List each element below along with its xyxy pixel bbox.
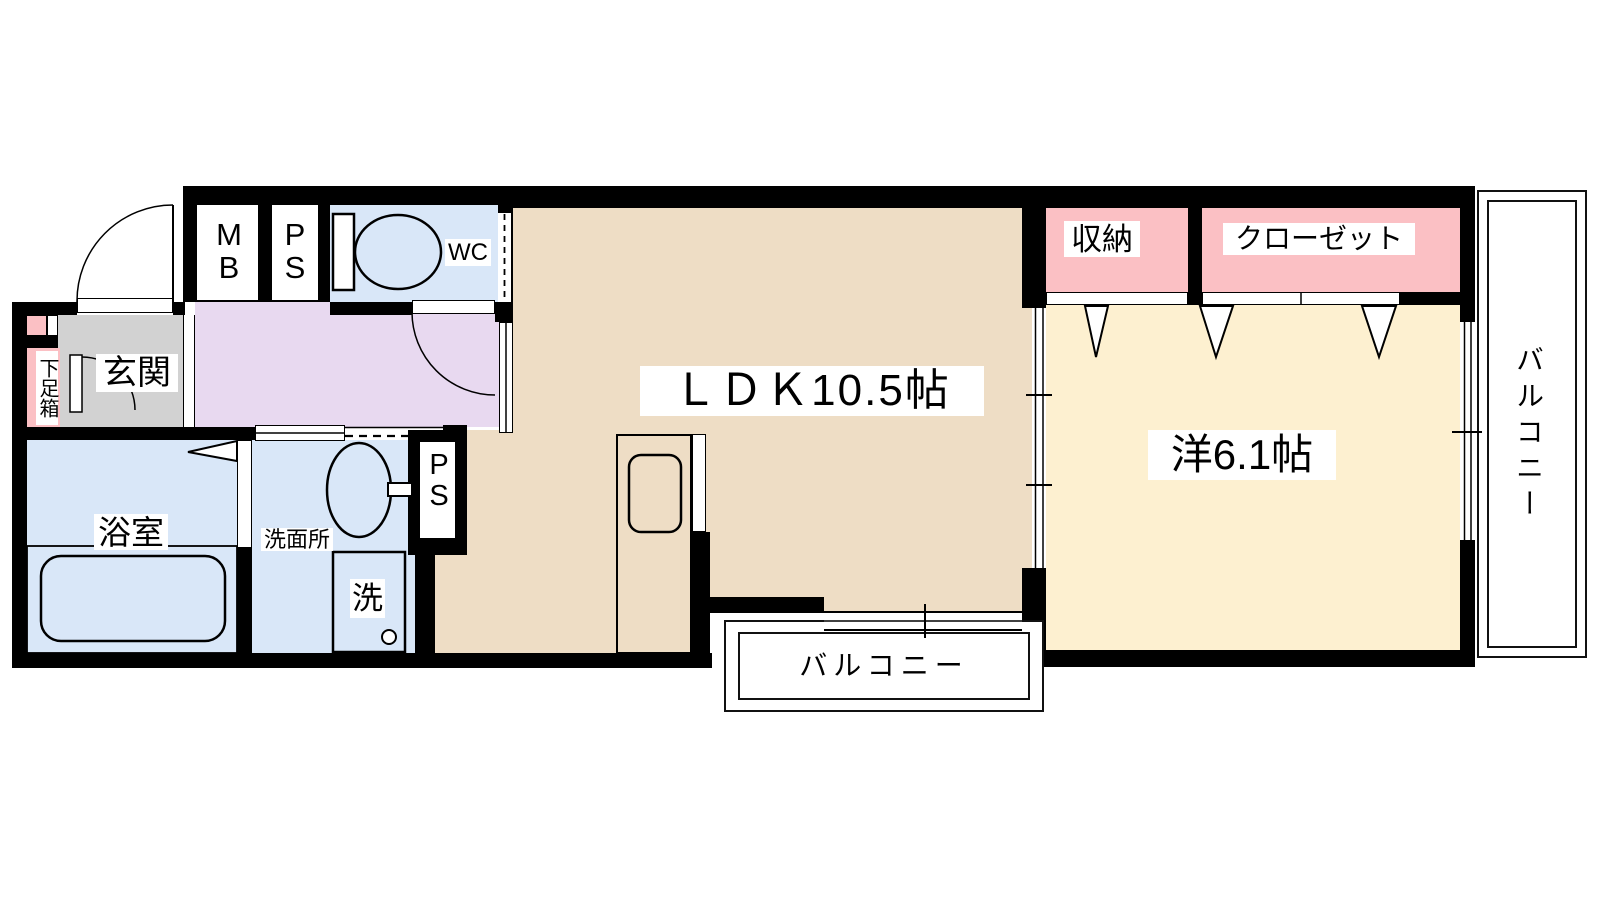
ldk-western-partition [1032,308,1046,568]
storage-door-band [1046,292,1188,305]
wall [12,302,77,315]
hallway-floor [195,302,505,427]
wall [330,300,412,315]
bath-door [237,440,252,548]
balcony-bottom-label: バルコニー [770,650,998,682]
entrance-door-arc [77,205,173,302]
hall-ldk-door [499,322,513,433]
shoe-box-label: 下足箱 [36,351,58,425]
ldk-label: ＬＤＫ10.5帖 [640,366,984,416]
wc-label: WC [445,239,491,266]
small-column [47,315,58,336]
wall [173,302,185,315]
wall [1400,292,1460,305]
balcony-right-label: バルコニー [1508,310,1548,560]
closet-label: クローゼット [1223,223,1415,255]
floor-plan: 玄関 下足箱 MB PS WC 浴室 洗面所 洗 PS ＬＤＫ10.5帖 洋6.… [0,0,1600,900]
bathroom-label: 浴室 [94,514,168,550]
ldk-sliding-door-panel [616,434,692,654]
wall [495,300,513,322]
closet-door-band [1202,292,1400,305]
wall [26,336,58,348]
wall [237,548,252,653]
shoe-box-top [26,315,47,336]
wall [12,427,255,440]
washer-label: 洗 [350,579,385,618]
entrance-door-leaf [77,298,173,313]
wall [415,547,435,653]
wc-dashed-strip [498,213,511,302]
wall [12,302,27,668]
south-window [824,611,1022,631]
ps-mid-label: PS [424,450,454,530]
wall [1188,208,1202,305]
door-pocket [692,434,706,532]
wall [710,597,824,613]
wall [1022,208,1046,308]
storage-label: 収納 [1064,221,1140,257]
genkan-label: 玄関 [96,354,178,392]
east-window [1460,322,1475,540]
wall [690,532,710,653]
ldk-floor-main [435,430,1032,613]
washroom-door [255,425,345,441]
western-room-label: 洋6.1帖 [1148,430,1336,480]
wall [12,653,712,668]
wall [1020,650,1475,667]
genkan-step [183,315,195,427]
wc-door-leaf [412,300,495,314]
washroom-label: 洗面所 [261,528,333,551]
mb-label: MB [213,218,245,290]
ps-top-label: PS [279,218,311,290]
